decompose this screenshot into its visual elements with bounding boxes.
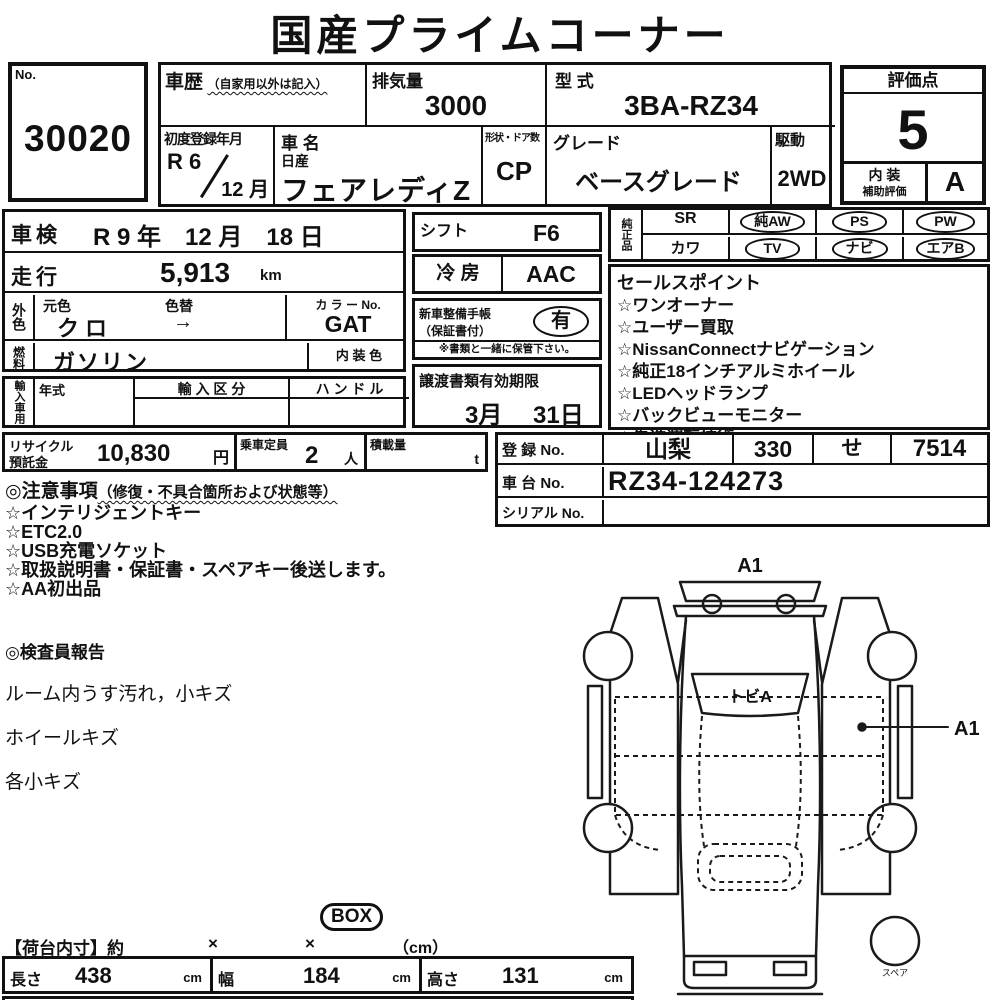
grade-value: ベースグレード — [553, 162, 764, 197]
recycle-deposit-cell: リサイクル 預託金 10,830 円 — [5, 435, 237, 469]
color-change-value: → — [173, 311, 193, 334]
inspector-report-item: 各小キズ — [5, 767, 560, 794]
drive-cell: 駆動 2WD — [772, 127, 832, 204]
cargo-times2: × — [305, 934, 315, 954]
capacity-label: 乗車定員 — [240, 436, 288, 453]
service-book-value: 有 — [533, 306, 589, 337]
diagram-windshield-label: トビA — [728, 688, 772, 706]
recycle-unit: 円 — [213, 444, 229, 468]
shaken-label: 車検 — [11, 219, 61, 249]
model-code-value: 3BA-RZ34 — [555, 90, 827, 122]
ac-value: AAC — [503, 257, 599, 291]
notes-section: ◎注意事項（修復・不具合箇所および状態等） ☆インテリジェントキー ☆ETC2.… — [5, 476, 560, 599]
cargo-length-label: 長さ — [10, 966, 42, 990]
diagram-spare-label: スペア — [882, 968, 908, 978]
cargo-title-row: 【荷台内寸】約 × × （cm） — [5, 934, 455, 954]
import-handle-label: ハ ン ド ル — [290, 379, 409, 399]
registration-row: 登 録 No. 山梨 330 せ 7514 — [498, 435, 987, 465]
cargo-dimensions-table: 長さ 438 cm 幅 184 cm 高さ 131 cm — [2, 956, 634, 994]
drive-label: 駆動 — [775, 129, 829, 150]
cargo-width-unit: cm — [392, 970, 411, 985]
cargo-height-value: 131 — [502, 963, 539, 989]
mileage-row: 走行 5,913 km — [5, 255, 403, 293]
base-color-value: クロ — [57, 311, 113, 343]
sales-point-item: ☆NissanConnectナビゲーション — [617, 339, 981, 361]
cargo-length-unit: cm — [183, 970, 202, 985]
registration-table: 登 録 No. 山梨 330 せ 7514 車 台 No. RZ34-12427… — [495, 432, 990, 527]
sales-points-box: セールスポイント ☆ワンオーナー ☆ユーザー買取 ☆NissanConnectナ… — [608, 264, 990, 430]
ac-label: 冷 房 — [415, 257, 503, 291]
rating-score: 5 — [844, 94, 982, 167]
capacity-cell: 乗車定員 2 人 — [237, 435, 367, 469]
oem-equipment-table: 純正品 SR 純AW PS PW カワ TV ナビ エアB — [608, 207, 990, 262]
first-registration-era: R 6 — [167, 149, 201, 175]
left-detail-table: 車検 R 9 年 12 月 18 日 走行 5,913 km 外色 元色 色替 … — [2, 209, 406, 372]
sales-point-item: ☆LEDヘッドランプ — [617, 383, 981, 405]
first-registration-cell: 初度登録年月 R 6 12 月 — [161, 127, 275, 204]
sales-point-item: ☆ワンオーナー — [617, 295, 981, 317]
registration-number: 7514 — [890, 435, 987, 463]
ac-box: 冷 房 AAC — [412, 254, 602, 294]
import-table: 輸入車用 年式 輸 入 区 分 ハ ン ド ル — [2, 376, 406, 428]
model-code-cell: 型 式 3BA-RZ34 — [547, 65, 835, 127]
registration-area: 山梨 — [602, 435, 732, 463]
transfer-docs-box: 譲渡書類有効期限 3月 31日 — [412, 364, 602, 428]
history-cell: 車歴 （自家用以外は記入） — [161, 65, 367, 127]
lot-number-value: 30020 — [12, 118, 144, 160]
color-no-cell: カ ラ ー No. GAT — [285, 295, 409, 339]
sales-point-item: ☆純正18インチアルミホイール — [617, 361, 981, 383]
service-book-note: ※書類と一緒に保管下さい。 — [415, 340, 599, 357]
cargo-width-value: 184 — [303, 963, 340, 989]
oem-item-ps: PS — [817, 210, 904, 233]
diagram-top-label: A1 — [737, 556, 763, 577]
color-no-value: GAT — [287, 311, 409, 338]
fuel-label: 燃料 — [5, 343, 35, 372]
transfer-month: 3月 — [465, 395, 502, 430]
note-item: ☆ETC2.0 — [5, 523, 560, 542]
car-name-value: フェアレディZ — [281, 169, 475, 209]
import-year-cell: 年式 — [35, 379, 135, 425]
import-label: 輸入車用 — [5, 379, 35, 425]
diagram-pointer-label: A1 — [954, 718, 980, 740]
cargo-height-label: 高さ — [427, 966, 459, 990]
oem-item-pw: PW — [904, 210, 987, 233]
registration-kana: せ — [812, 435, 890, 463]
lot-number-label: No. — [15, 67, 36, 82]
rating-label: 評価点 — [844, 69, 982, 94]
mileage-unit: km — [260, 267, 282, 284]
history-label: 車歴 — [165, 72, 203, 93]
body-doors-cell: 形状・ドア数 CP — [483, 127, 547, 204]
inspector-report-item: ホイールキズ — [5, 723, 560, 750]
displacement-label: 排気量 — [372, 67, 540, 92]
mileage-value: 5,913 — [160, 257, 230, 289]
import-class-label: 輸 入 区 分 — [135, 379, 288, 399]
serial-value — [602, 500, 987, 524]
load-label: 積載量 — [370, 436, 406, 453]
service-book-box: 新車整備手帳 （保証書付） 有 ※書類と一緒に保管下さい。 — [412, 298, 602, 360]
model-code-label: 型 式 — [555, 67, 827, 92]
grade-label: グレード — [553, 129, 764, 154]
note-item: ☆インテリジェントキー — [5, 503, 560, 523]
exterior-color-row: 外色 元色 色替 クロ → カ ラ ー No. GAT — [5, 295, 403, 341]
displacement-cell: 排気量 3000 — [367, 65, 547, 127]
oem-item-aw: 純AW — [730, 210, 817, 233]
import-handle-cell: ハ ン ド ル — [290, 379, 409, 425]
import-class-cell: 輸 入 区 分 — [135, 379, 290, 425]
grade-cell: グレード ベースグレード — [547, 127, 772, 204]
shaken-value: R 9 年 12 月 18 日 — [93, 217, 324, 252]
shift-box: シフト F6 — [412, 212, 602, 252]
rating-box: 評価点 5 内 装 補助評価 A — [840, 65, 986, 205]
cargo-unit-note: （cm） — [393, 934, 448, 958]
vehicle-header-table: 車歴 （自家用以外は記入） 排気量 3000 型 式 3BA-RZ34 初度登録… — [158, 62, 832, 207]
load-unit: t — [474, 451, 479, 467]
inspector-report-title: ◎検査員報告 — [5, 638, 560, 663]
load-cell: 積載量 t — [367, 435, 485, 469]
interior-rating-label: 内 装 補助評価 — [844, 164, 928, 201]
page-title: 国産プライムコーナー — [0, 2, 1000, 63]
chassis-row: 車 台 No. RZ34-124273 — [498, 467, 987, 498]
exterior-color-label: 外色 — [5, 295, 35, 339]
inspector-report-section: ◎検査員報告 ルーム内うす汚れ，小キズ ホイールキズ 各小キズ — [5, 638, 560, 794]
oem-item-navi: ナビ — [817, 237, 904, 262]
cargo-height-cell: 高さ 131 cm — [422, 959, 631, 991]
import-year-label: 年式 — [39, 383, 65, 398]
body-doors-value: CP — [485, 156, 543, 187]
history-note: （自家用以外は記入） — [207, 77, 327, 91]
first-registration-month: 12 月 — [221, 173, 269, 202]
service-book-label: 新車整備手帳 （保証書付） — [419, 305, 511, 339]
cargo-width-label: 幅 — [218, 966, 234, 990]
fuel-value: ガソリン — [53, 345, 149, 377]
car-name-cell: 車 名 日産 フェアレディZ — [275, 127, 483, 204]
transfer-docs-label: 譲渡書類有効期限 — [415, 367, 599, 391]
oem-item-kawa: カワ — [643, 237, 730, 262]
registration-label: 登 録 No. — [498, 435, 602, 463]
sales-points-title: セールスポイント — [617, 269, 981, 295]
shift-value: F6 — [533, 220, 560, 247]
note-item: ☆取扱説明書・保証書・スペアキー後送します。 — [5, 561, 560, 580]
serial-row: シリアル No. — [498, 500, 987, 524]
box-badge: BOX — [320, 903, 383, 931]
cargo-length-cell: 長さ 438 cm — [5, 959, 213, 991]
shift-label: シフト — [420, 217, 468, 241]
mileage-label: 走行 — [11, 261, 61, 291]
cargo-length-value: 438 — [75, 963, 112, 989]
recycle-value: 10,830 — [97, 440, 170, 468]
vehicle-diagram: A1 トビA A1 スペア — [562, 556, 998, 1000]
capacity-unit: 人 — [344, 449, 358, 469]
transfer-day: 31日 — [533, 395, 584, 430]
oem-item-sr: SR — [643, 210, 730, 233]
capacity-value: 2 — [305, 442, 318, 470]
cargo-times1: × — [208, 934, 218, 954]
oem-item-tv: TV — [730, 237, 817, 262]
fuel-row: 燃料 ガソリン 内 装 色 — [5, 343, 403, 372]
sales-point-item: ☆ユーザー買取 — [617, 317, 981, 339]
inspector-report-item: ルーム内うす汚れ，小キズ — [5, 679, 560, 706]
chassis-value: RZ34-124273 — [602, 467, 987, 496]
cargo-next-row-partial — [2, 996, 634, 1000]
first-registration-label: 初度登録年月 — [164, 129, 270, 149]
body-doors-label: 形状・ドア数 — [485, 129, 543, 144]
interior-color-label: 内 装 色 — [309, 343, 409, 364]
cargo-height-unit: cm — [604, 970, 623, 985]
recycle-capacity-table: リサイクル 預託金 10,830 円 乗車定員 2 人 積載量 t — [2, 432, 488, 472]
maker-name: 日産 — [281, 151, 475, 171]
notes-title: ◎注意事項（修復・不具合箇所および状態等） — [5, 476, 560, 503]
note-item: ☆AA初出品 — [5, 580, 560, 599]
sales-point-item: ☆バックビューモニター — [617, 405, 981, 427]
oem-item-airbag: エアB — [904, 237, 987, 262]
note-item: ☆USB充電ソケット — [5, 542, 560, 561]
displacement-value: 3000 — [372, 90, 540, 122]
registration-class: 330 — [732, 435, 812, 463]
interior-color-cell: 内 装 色 — [307, 343, 409, 372]
auction-sheet: 国産プライムコーナー No. 30020 車歴 （自家用以外は記入） 排気量 3… — [0, 0, 1000, 1000]
lot-number-box: No. 30020 — [8, 62, 148, 202]
drive-value: 2WD — [775, 166, 829, 192]
interior-rating-score: A — [928, 164, 982, 201]
cargo-width-cell: 幅 184 cm — [213, 959, 422, 991]
shaken-row: 車検 R 9 年 12 月 18 日 — [5, 212, 403, 253]
oem-label: 純正品 — [611, 210, 643, 259]
